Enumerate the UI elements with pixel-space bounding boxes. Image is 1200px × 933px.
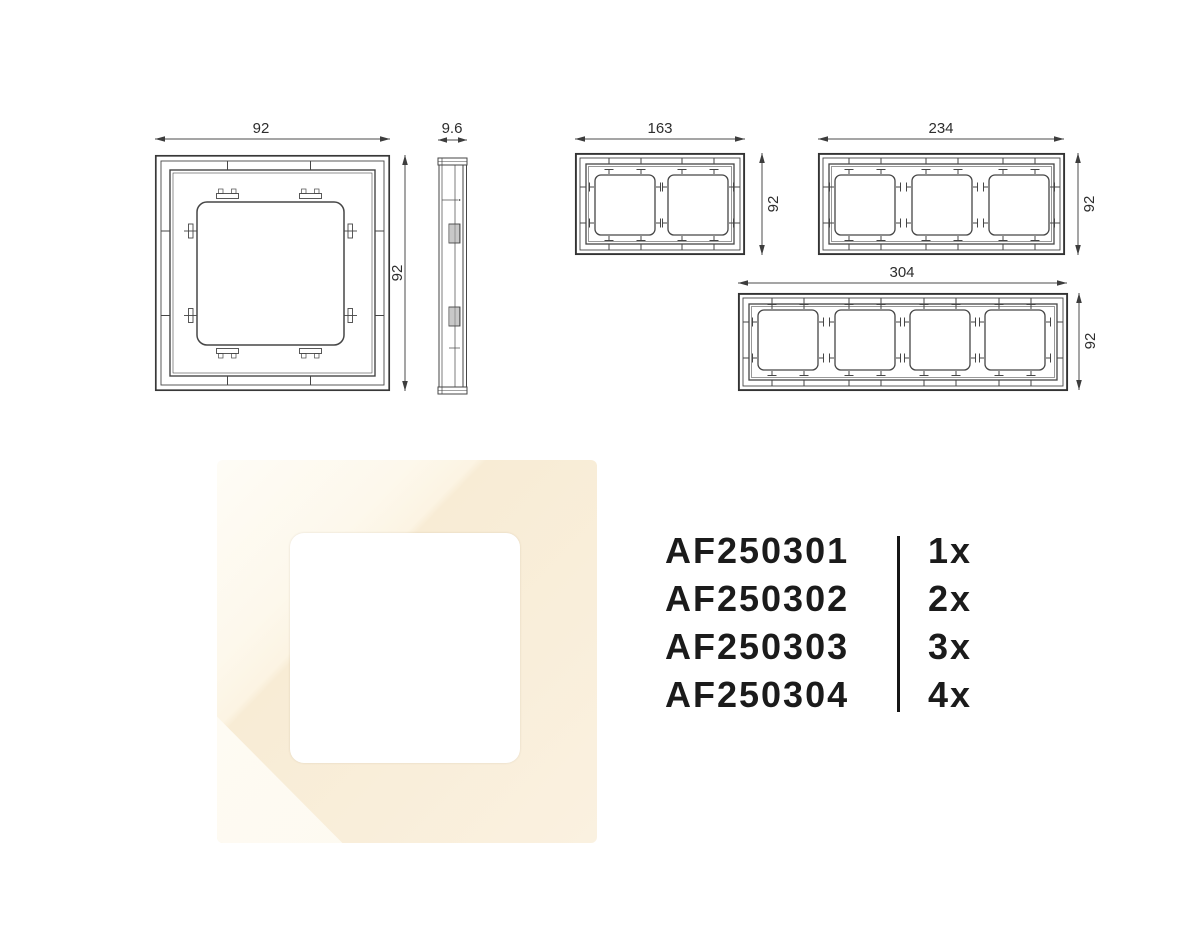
module-opening-4 bbox=[980, 305, 1051, 376]
article-code: AF250302 bbox=[665, 575, 897, 623]
spec-sheet-page: 92 92 bbox=[0, 0, 1200, 933]
module-opening-2 bbox=[907, 170, 978, 241]
article-code: AF250304 bbox=[665, 671, 897, 719]
dim-width-label-3gang: 234 bbox=[928, 120, 953, 137]
dim-width-2gang bbox=[575, 136, 745, 142]
photo-frame-opening bbox=[290, 533, 520, 763]
dim-width-label-2gang: 163 bbox=[647, 120, 672, 137]
module-opening-1gang bbox=[184, 189, 357, 358]
frame-outline-2gang bbox=[576, 154, 744, 254]
dim-width-1gang bbox=[155, 136, 390, 142]
gang-count-column: 1x 2x 3x 4x bbox=[900, 527, 972, 719]
product-photo-1gang-cream-frame bbox=[217, 460, 597, 843]
dim-height-2gang bbox=[759, 153, 765, 255]
frame-outline-3gang bbox=[819, 154, 1064, 254]
dim-thickness bbox=[438, 137, 467, 142]
clip-hatch-lower bbox=[449, 307, 460, 326]
dim-width-3gang bbox=[818, 136, 1064, 142]
gang-count: 2x bbox=[928, 575, 972, 623]
gang-count: 4x bbox=[928, 671, 972, 719]
gang-count: 3x bbox=[928, 623, 972, 671]
module-opening-1 bbox=[590, 170, 661, 241]
module-opening-2 bbox=[830, 305, 901, 376]
dim-width-label-4gang: 304 bbox=[889, 264, 914, 281]
drawing-frame-side-view: 9.6 bbox=[425, 110, 485, 410]
drawing-4gang-front-view: 304 92 bbox=[725, 250, 1105, 410]
clip-hatch-upper bbox=[449, 224, 460, 243]
frame-outline-4gang bbox=[739, 294, 1067, 390]
dim-height-label-3gang: 92 bbox=[1081, 196, 1098, 213]
dim-height-label-4gang: 92 bbox=[1082, 333, 1099, 350]
article-codes-table: AF250301 AF250302 AF250303 AF250304 1x 2… bbox=[665, 527, 972, 719]
module-opening-1 bbox=[830, 170, 901, 241]
frame-outline-1gang bbox=[156, 156, 389, 390]
dim-height-3gang bbox=[1075, 153, 1081, 255]
dim-width-label-1gang: 92 bbox=[253, 120, 270, 137]
module-opening-3 bbox=[984, 170, 1055, 241]
article-code: AF250301 bbox=[665, 527, 897, 575]
gang-count: 1x bbox=[928, 527, 972, 575]
side-profile bbox=[438, 158, 467, 394]
drawing-3gang-front-view: 234 92 bbox=[805, 110, 1105, 270]
drawing-2gang-front-view: 163 92 bbox=[560, 110, 795, 270]
dim-height-label-1gang: 92 bbox=[389, 265, 406, 282]
article-code: AF250303 bbox=[665, 623, 897, 671]
dim-height-label-2gang: 92 bbox=[765, 196, 782, 213]
article-code-column: AF250301 AF250302 AF250303 AF250304 bbox=[665, 527, 897, 719]
module-opening-1 bbox=[753, 305, 824, 376]
dim-height-4gang bbox=[1076, 293, 1082, 390]
dim-width-4gang bbox=[738, 280, 1067, 286]
drawing-1gang-front-view: 92 92 bbox=[140, 110, 430, 410]
module-opening-3 bbox=[905, 305, 976, 376]
dim-thickness-label: 9.6 bbox=[442, 120, 463, 137]
module-opening-2 bbox=[663, 170, 734, 241]
